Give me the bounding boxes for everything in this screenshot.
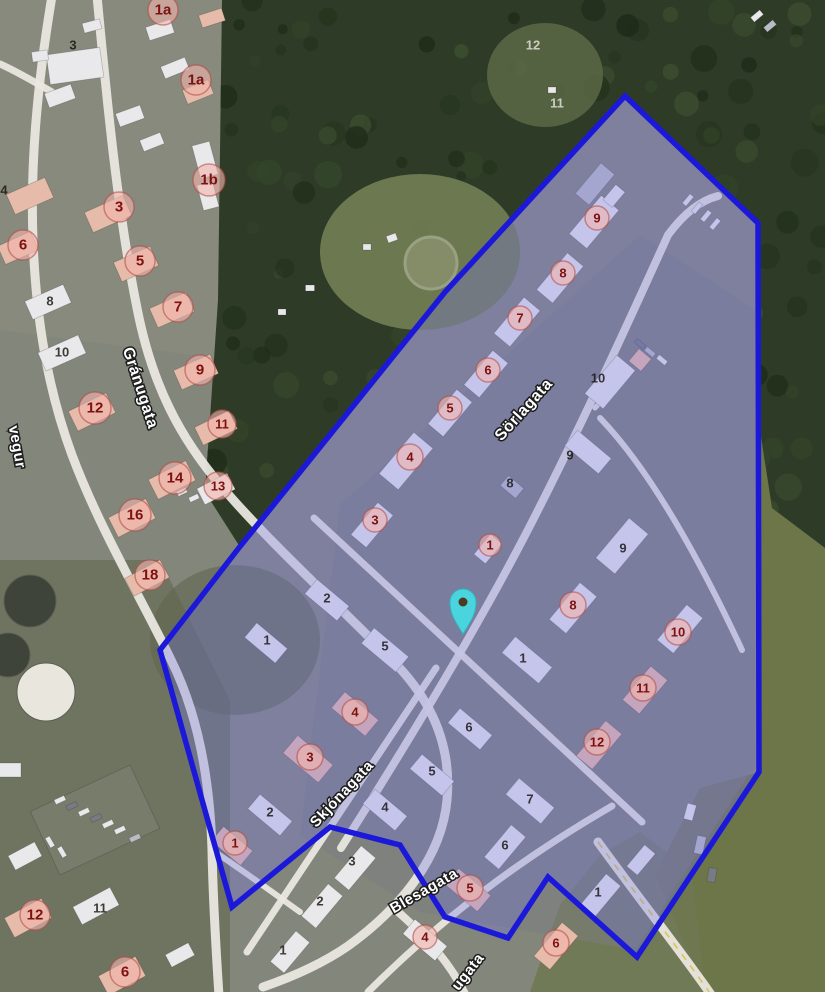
marker-number: 13 [211, 479, 225, 494]
lot-number-label: 8 [46, 294, 53, 309]
house-number-marker[interactable]: 5 [438, 396, 462, 420]
marker-number: 18 [142, 567, 159, 584]
house-number-marker[interactable]: 5 [125, 246, 155, 276]
house-number-marker[interactable]: 12 [584, 729, 610, 755]
lot-number-label: 3 [348, 854, 355, 869]
house-number-marker[interactable]: 1a [148, 0, 178, 25]
marker-number: 1 [231, 836, 238, 851]
house-number-marker[interactable]: 3 [363, 508, 387, 532]
lot-number-label: 10 [55, 345, 69, 360]
house-number-marker[interactable]: 1a [181, 65, 211, 95]
marker-number: 1a [188, 72, 205, 89]
lot-number-label: 9 [619, 541, 626, 556]
marker-number: 8 [569, 598, 576, 613]
marker-number: 6 [484, 363, 491, 378]
marker-number: 11 [215, 417, 229, 432]
house-number-marker[interactable]: 6 [543, 930, 569, 956]
lot-number-label: 2 [316, 894, 323, 909]
lot-number-label: 2 [266, 805, 273, 820]
marker-number: 12 [27, 907, 44, 924]
house-number-marker[interactable]: 14 [159, 462, 191, 494]
lot-number-label: 1 [279, 943, 286, 958]
building-footprint [548, 87, 556, 93]
building-footprint [0, 763, 21, 777]
pin-center-dot [459, 598, 468, 607]
storage-tank [4, 575, 56, 627]
marker-number: 16 [127, 507, 144, 524]
lot-number-label: 6 [501, 838, 508, 853]
marker-number: 4 [406, 450, 414, 465]
house-number-marker[interactable]: 5 [457, 875, 483, 901]
marker-number: 9 [196, 362, 204, 379]
marker-number: 1a [155, 2, 172, 19]
house-number-marker[interactable]: 13 [204, 472, 232, 500]
marker-number: 5 [136, 253, 144, 270]
marker-number: 10 [671, 625, 685, 640]
marker-number: 4 [351, 705, 359, 720]
lot-number-label: 12 [526, 38, 540, 53]
lot-number-label: 8 [506, 476, 513, 491]
lot-number-label: 4 [381, 800, 389, 815]
marker-number: 3 [306, 750, 313, 765]
lot-number-label: 1 [263, 633, 270, 648]
marker-number: 1 [486, 538, 493, 553]
storage-tank [17, 663, 75, 721]
map-canvas[interactable]: 348101211112151654721098932611GránugataS… [0, 0, 825, 992]
house-number-marker[interactable]: 3 [297, 744, 323, 770]
house-number-marker[interactable]: 9 [185, 355, 215, 385]
marker-number: 1b [200, 172, 218, 189]
house-number-marker[interactable]: 4 [397, 444, 423, 470]
marker-number: 7 [516, 311, 523, 326]
marker-number: 7 [174, 299, 182, 316]
house-number-marker[interactable]: 3 [104, 192, 134, 222]
lot-number-label: 11 [93, 901, 107, 916]
lot-number-label: 5 [428, 764, 435, 779]
house-number-marker[interactable]: 4 [413, 925, 437, 949]
marker-number: 14 [167, 470, 184, 487]
building-footprint [363, 244, 371, 250]
marker-number: 8 [559, 266, 566, 281]
marker-number: 12 [590, 735, 604, 750]
lot-number-label: 11 [550, 96, 564, 111]
house-number-marker[interactable]: 1 [223, 831, 247, 855]
lot-number-label: 3 [69, 38, 76, 53]
marker-number: 3 [115, 199, 123, 216]
house-number-marker[interactable]: 4 [342, 699, 368, 725]
marker-number: 3 [371, 513, 378, 528]
lot-number-label: 9 [566, 448, 573, 463]
house-number-marker[interactable]: 12 [20, 900, 50, 930]
lot-number-label: 7 [526, 792, 533, 807]
marker-number: 4 [421, 930, 429, 945]
building-footprint [306, 285, 315, 291]
lot-number-label: 1 [594, 885, 601, 900]
house-number-marker[interactable]: 8 [560, 592, 586, 618]
house-number-marker[interactable]: 1b [193, 164, 225, 196]
marker-number: 6 [121, 964, 129, 981]
lot-number-label: 10 [591, 371, 605, 386]
lot-number-label: 2 [323, 591, 330, 606]
house-number-marker[interactable]: 10 [665, 619, 691, 645]
marker-number: 5 [446, 401, 453, 416]
house-number-marker[interactable]: 6 [476, 358, 500, 382]
house-number-marker[interactable]: 16 [119, 499, 151, 531]
building-footprint [31, 50, 48, 62]
marker-number: 12 [87, 400, 104, 417]
house-number-marker[interactable]: 6 [110, 957, 140, 987]
ring-feature [405, 237, 457, 289]
lot-number-label: 5 [381, 639, 388, 654]
aerial-map[interactable]: 348101211112151654721098932611GránugataS… [0, 0, 825, 992]
house-number-marker[interactable]: 11 [630, 675, 656, 701]
house-number-marker[interactable]: 12 [79, 392, 111, 424]
house-number-marker[interactable]: 7 [163, 292, 193, 322]
house-number-marker[interactable]: 7 [508, 306, 532, 330]
marker-number: 6 [552, 936, 559, 951]
lot-number-label: 6 [465, 720, 472, 735]
house-number-marker[interactable]: 8 [551, 261, 575, 285]
marker-number: 11 [636, 681, 650, 696]
house-number-marker[interactable]: 1 [479, 534, 501, 556]
marker-number: 5 [466, 881, 473, 896]
house-number-marker[interactable]: 6 [8, 230, 38, 260]
clearing [487, 23, 603, 127]
house-number-marker[interactable]: 18 [135, 560, 165, 590]
marker-number: 6 [19, 237, 27, 254]
lot-number-label: 1 [519, 651, 526, 666]
building-footprint [278, 309, 286, 315]
marker-number: 9 [593, 211, 600, 226]
house-number-marker[interactable]: 9 [585, 206, 609, 230]
house-number-marker[interactable]: 11 [208, 410, 236, 438]
lot-number-label: 4 [0, 183, 8, 198]
